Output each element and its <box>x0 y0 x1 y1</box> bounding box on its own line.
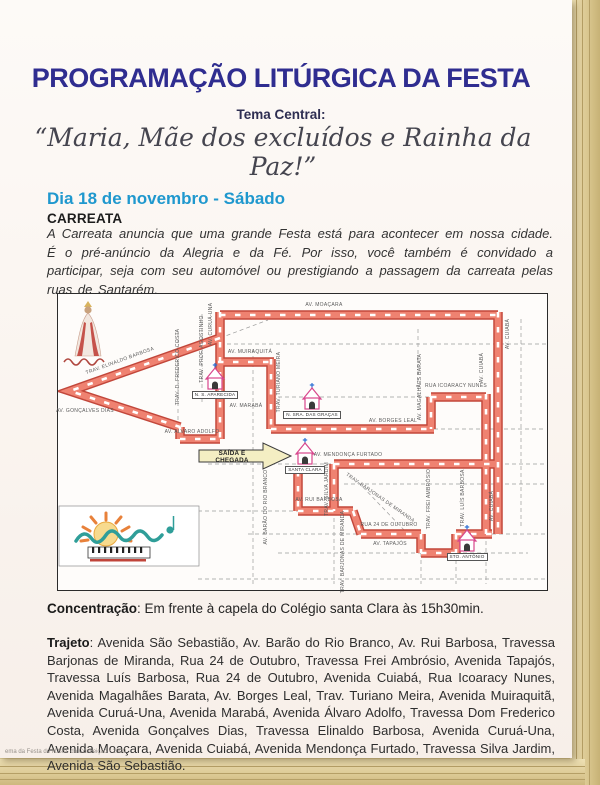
concentration-line: Concentração: Em frente à capela do Colé… <box>47 601 484 616</box>
church-marker: N. S. APARECIDA <box>203 362 227 399</box>
street-label: AV. MENDONÇA FURTADO <box>314 452 383 458</box>
book-page-edges-right <box>570 0 600 785</box>
concentration-label: Concentração <box>47 601 137 616</box>
street-label: TRAV. D. FREDERICO COSTA <box>175 329 181 406</box>
church-label: N. SRA. DAS GRAÇAS <box>283 411 341 419</box>
street-label: AV. CURUÁ-UNA <box>208 303 214 346</box>
page-edge-line <box>589 0 590 785</box>
church-icon <box>204 362 226 390</box>
street-label: TRAV. PROF. AGOSTINHO <box>199 315 205 382</box>
day-heading: Dia 18 de novembro - Sábado <box>47 189 285 209</box>
street-label: RUA 24 DE OUTUBRO <box>360 522 417 528</box>
church-label: SANTA CLARA <box>285 466 325 474</box>
theme-label: Tema Central: <box>0 107 562 122</box>
street-label: AV. CUIABÁ <box>479 353 485 383</box>
street-label: AV. CUIABÁ <box>489 491 495 521</box>
church-icon <box>456 524 478 552</box>
start-finish-arrow-label: SAÍDA E CHEGADA <box>202 450 262 464</box>
street-label: AV. MUIRAQUITÁ <box>228 349 272 355</box>
street-label: AV. CUIABÁ <box>505 319 511 349</box>
street-label: TRAV. SILVA JARDIM <box>324 462 330 516</box>
street-label: AV. TAPAJÓS <box>373 541 407 547</box>
street-label: TRAV. FREI AMBRÓSIO <box>426 469 432 529</box>
street-label: AV. MAGALHÃES BARATA <box>417 354 423 420</box>
page-footer: ema da Festa de N.Sra. da Conceição • 20… <box>5 749 126 755</box>
event-heading: CARREATA <box>47 211 122 226</box>
church-label: STO. ANTÔNIO <box>447 553 488 561</box>
route-label: Trajeto <box>47 635 90 650</box>
church-marker: N. SRA. DAS GRAÇAS <box>300 382 324 419</box>
street-label: RUA ICOARACY NUNES <box>425 383 487 389</box>
church-icon <box>294 437 316 465</box>
page-title: PROGRAMAÇÃO LITÚRGICA DA FESTA <box>0 63 562 94</box>
street-label: AV. GONÇALVES DIAS <box>56 408 114 414</box>
scanned-booklet-page: { "page": { "title": "PROGRAMAÇÃO LITÚRG… <box>0 0 600 785</box>
street-label: AV. MARABÁ <box>230 403 263 409</box>
street-label: AV. BARÃO DO RIO BRANCO <box>263 470 269 545</box>
street-label: AV. MOAÇARA <box>305 302 342 308</box>
document-page: PROGRAMAÇÃO LITÚRGICA DA FESTA Tema Cent… <box>0 0 572 758</box>
concentration-text: : Em frente à capela do Colégio santa Cl… <box>137 601 484 616</box>
our-lady-image <box>64 301 104 365</box>
street-label: AV. ALVARO ADOLFO <box>165 429 220 435</box>
page-edge-line <box>582 0 583 785</box>
church-icon <box>301 382 323 410</box>
event-description: A Carreata anuncia que uma grande Festa … <box>47 225 553 299</box>
route-map: N. S. APARECIDA N. SRA. DAS GRAÇAS SANTA… <box>57 293 548 591</box>
music-logo <box>59 506 199 566</box>
street-label: TRAV. LUÍS BARBOSA <box>460 469 466 526</box>
theme-quote: “Maria, Mãe dos excluídos e Rainha da Pa… <box>0 123 566 181</box>
church-marker: STO. ANTÔNIO <box>455 524 479 561</box>
street-label: AV. RUI BARBOSA <box>295 497 342 503</box>
page-edge-line <box>576 0 577 785</box>
street-label: AV. BORGES LEAL <box>369 418 417 424</box>
church-label: N. S. APARECIDA <box>192 391 238 399</box>
page-edge-line <box>0 779 585 780</box>
street-label: TRAV. BARJONAS DE MIRANDA <box>340 511 346 594</box>
street-label: TRAV. TURIANO MEIRA <box>276 352 282 413</box>
